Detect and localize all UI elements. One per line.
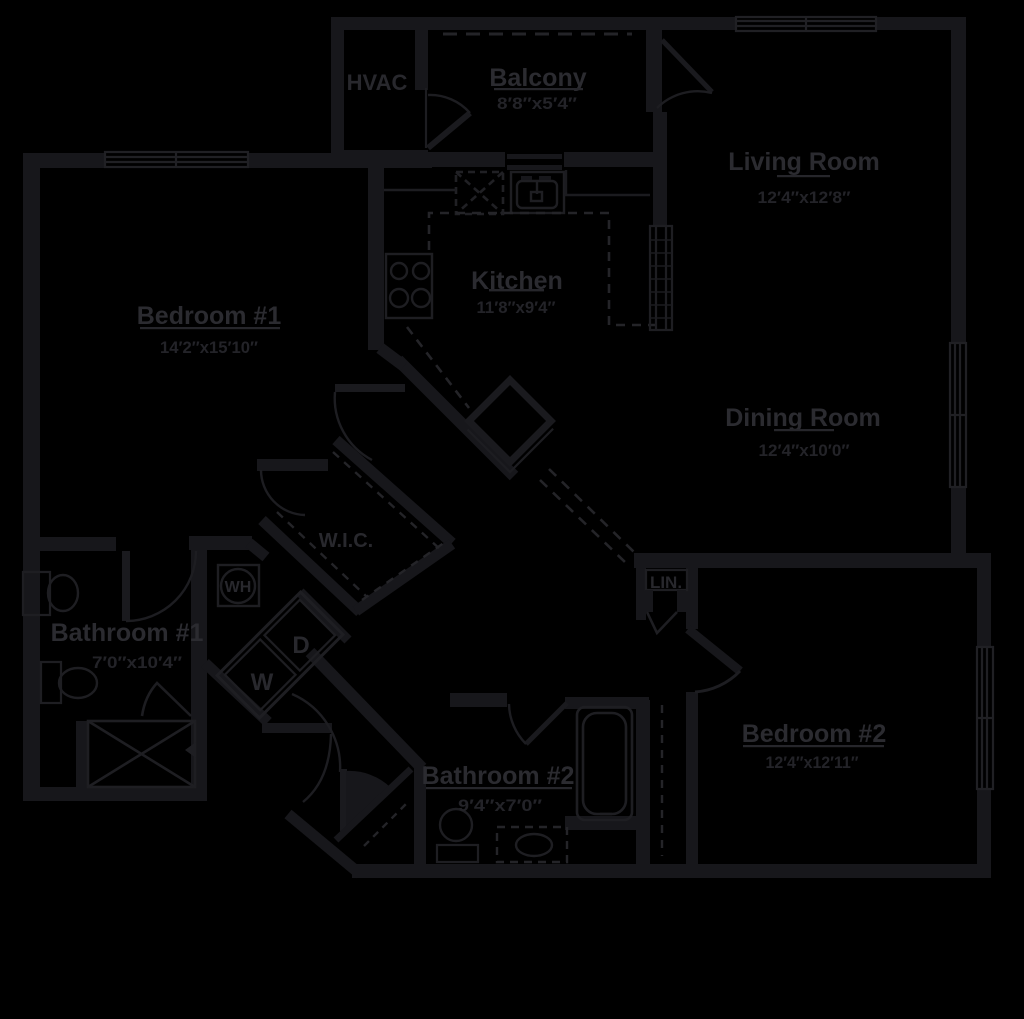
- svg-text:W: W: [251, 669, 274, 696]
- svg-text:Dining Room: Dining Room: [725, 404, 881, 432]
- svg-text:Bedroom #1: Bedroom #1: [137, 302, 282, 330]
- svg-text:7′0″x10′4″: 7′0″x10′4″: [92, 653, 182, 672]
- svg-text:Living Room: Living Room: [728, 148, 879, 176]
- svg-text:14′2″x15′10″: 14′2″x15′10″: [160, 338, 258, 357]
- svg-text:Bathroom #1: Bathroom #1: [51, 619, 204, 647]
- svg-text:11′8″x9′4″: 11′8″x9′4″: [477, 298, 556, 317]
- svg-text:9′4″x7′0″: 9′4″x7′0″: [458, 796, 542, 815]
- svg-text:Balcony: Balcony: [489, 64, 586, 92]
- svg-text:WH: WH: [225, 579, 252, 596]
- svg-text:LIN.: LIN.: [650, 573, 682, 592]
- svg-text:Bedroom #2: Bedroom #2: [742, 720, 886, 748]
- svg-text:HVAC: HVAC: [347, 70, 408, 95]
- svg-text:Bathroom #2: Bathroom #2: [422, 762, 575, 790]
- svg-text:12′4″x10′0″: 12′4″x10′0″: [759, 441, 850, 460]
- svg-text:W.I.C.: W.I.C.: [319, 530, 373, 552]
- svg-text:D: D: [292, 632, 309, 659]
- svg-text:12′4″x12′11″: 12′4″x12′11″: [766, 753, 859, 772]
- svg-text:12′4″x12′8″: 12′4″x12′8″: [758, 188, 851, 207]
- svg-text:8′8″x5′4″: 8′8″x5′4″: [497, 94, 577, 113]
